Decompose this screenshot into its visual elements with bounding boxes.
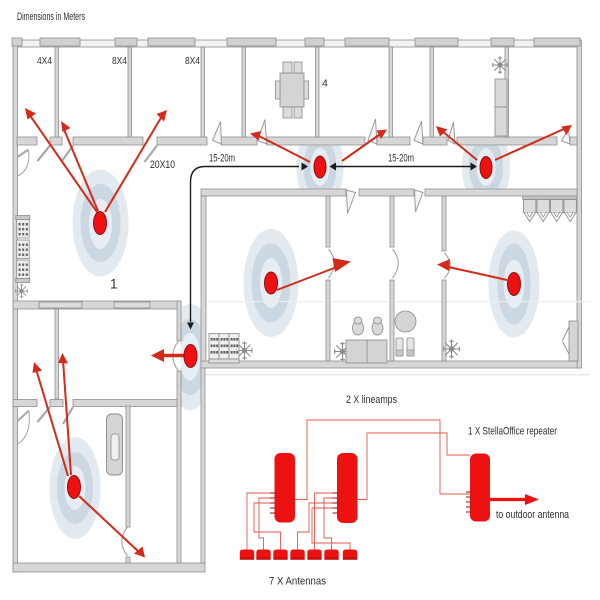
svg-text:8X4: 8X4 — [112, 55, 127, 67]
svg-text:20X10: 20X10 — [150, 159, 175, 171]
svg-text:15-20m: 15-20m — [209, 153, 235, 165]
svg-text:4: 4 — [322, 78, 328, 90]
svg-text:1 X StellaOffice repeater: 1 X StellaOffice repeater — [468, 426, 557, 438]
svg-text:4X4: 4X4 — [37, 55, 52, 67]
svg-text:Dimensions in Meters: Dimensions in Meters — [17, 11, 85, 23]
svg-text:1: 1 — [110, 277, 118, 292]
svg-text:7 X Antennas: 7 X Antennas — [269, 576, 326, 588]
svg-text:to outdoor antenna: to outdoor antenna — [496, 509, 570, 521]
svg-text:8X4: 8X4 — [185, 55, 200, 67]
svg-text:15-20m: 15-20m — [388, 153, 414, 165]
svg-text:2 X lineamps: 2 X lineamps — [346, 394, 397, 406]
